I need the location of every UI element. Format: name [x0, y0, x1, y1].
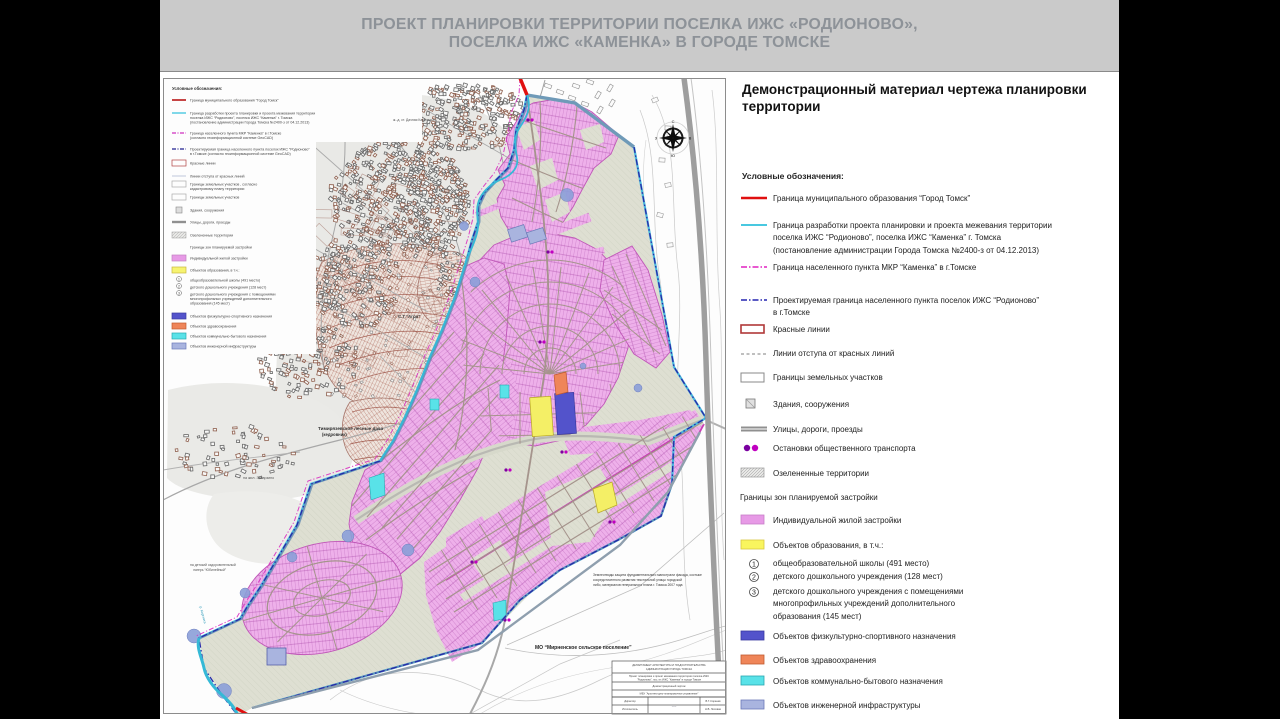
svg-text:“Родионово”, пос. их ИЖС “Кам: “Родионово”, пос. их ИЖС “Каменка” в гор… — [637, 678, 702, 682]
svg-text:Граница населенного пункта МКР: Граница населенного пункта МКР “Каменка”… — [190, 131, 281, 135]
svg-text:1: 1 — [752, 562, 756, 569]
svg-text:(постановление администрации Г: (постановление администрации Города Томс… — [190, 121, 310, 125]
svg-text:Линии отступа от красных линий: Линии отступа от красных линий — [190, 174, 245, 178]
svg-text:детского дошкольного учреждени: детского дошкольного учреждения с помеще… — [190, 292, 276, 296]
svg-text:Землеотводы защита фундаментал: Землеотводы защита фундаментального маги… — [593, 573, 702, 577]
svg-text:1: 1 — [178, 278, 180, 282]
svg-text:Демонстрационный чертеж: Демонстрационный чертеж — [653, 684, 686, 688]
svg-text:Границы земельных участков , с: Границы земельных участков , согласно — [190, 182, 257, 186]
svg-text:В.Г. Коренев: В.Г. Коренев — [705, 699, 721, 703]
svg-text:3: 3 — [752, 590, 756, 597]
svg-text:Здания, сооружения: Здания, сооружения — [190, 208, 224, 212]
svg-text:2: 2 — [178, 285, 180, 289]
svg-text:кадастровому плану территории: кадастровому плану территории — [190, 187, 244, 191]
svg-text:Границы зон планируемой застро: Границы зон планируемой застройки — [190, 245, 252, 249]
svg-text:Озелененные территории: Озелененные территории — [190, 233, 233, 237]
svg-text:Директор: Директор — [624, 699, 636, 703]
svg-text:детского дошкольного учреждени: детского дошкольного учреждения (128 мес… — [190, 285, 266, 289]
svg-text:Исполнитель: Исполнитель — [622, 707, 638, 711]
svg-text:~~: ~~ — [672, 704, 677, 709]
svg-text:ж.-д. ст. Дачная Каменка: ж.-д. ст. Дачная Каменка — [393, 118, 432, 122]
svg-text:МО “Мирненское сельское поселе: МО “Мирненское сельское поселение” — [535, 645, 632, 651]
svg-text:Красные линии: Красные линии — [190, 161, 216, 165]
svg-text:Проектируемая граница населенн: Проектируемая граница населенного пункта… — [190, 147, 310, 151]
svg-text:(кедровник): (кедровник) — [322, 432, 347, 437]
svg-text:2: 2 — [752, 575, 756, 582]
svg-text:С.Т.“Агро”: С.Т.“Агро” — [398, 314, 421, 319]
svg-text:Граница муниципального образов: Граница муниципального образования “Горо… — [190, 98, 279, 102]
svg-text:Объектов инженерной инфраструк: Объектов инженерной инфраструктуры — [190, 344, 257, 348]
svg-text:либо, материалов генерального: либо, материалов генерального плана г. Т… — [593, 583, 683, 587]
svg-text:на жил. Заварзино: на жил. Заварзино — [243, 476, 274, 480]
svg-text:на детский оздоровительный: на детский оздоровительный — [190, 563, 236, 567]
svg-text:сосредоточенного развития текс: сосредоточенного развития текстильной ул… — [593, 578, 682, 582]
svg-text:образования (145 мест): образования (145 мест) — [190, 302, 230, 306]
svg-text:в г.Томске (согласно геоинформ: в г.Томске (согласно геоинформационной с… — [190, 152, 291, 156]
svg-text:(согласно геоинформационной си: (согласно геоинформационной системе GeoC… — [190, 136, 273, 140]
svg-text:общеобразовательной школы (491: общеобразовательной школы (491 место) — [190, 278, 260, 282]
svg-text:Тимирязевское лесные дача: Тимирязевское лесные дача — [318, 426, 383, 431]
svg-text:поселка ИЖС “Родионово”, посел: поселка ИЖС “Родионово”, поселка ИЖС “Ка… — [190, 116, 292, 120]
svg-text:Граница разработки проекта пла: Граница разработки проекта планировки и … — [190, 111, 315, 115]
svg-text:Проект планировки и проект меж: Проект планировки и проект межевания тер… — [629, 674, 709, 678]
svg-text:МБУ “Архитектурно-планировочно: МБУ “Архитектурно-планировочное управлен… — [640, 692, 699, 696]
svg-text:Индивидуальной жилой застройки: Индивидуальной жилой застройки — [190, 256, 248, 260]
svg-text:Улицы, дороги, проезды: Улицы, дороги, проезды — [190, 220, 231, 224]
svg-text:Объектов образования, в т.ч.:: Объектов образования, в т.ч.: — [190, 268, 240, 272]
svg-text:Н.В. Лисовая: Н.В. Лисовая — [705, 707, 721, 711]
svg-text:3: 3 — [178, 292, 180, 296]
svg-text:лагерь “Юбилейный”: лагерь “Юбилейный” — [193, 568, 226, 572]
svg-text:С: С — [672, 119, 675, 124]
svg-text:Границы земельных участков: Границы земельных участков — [190, 195, 239, 199]
svg-text:ДЕПАРТАМЕНТ АРХИТЕКТУРЫ И ГРАД: ДЕПАРТАМЕНТ АРХИТЕКТУРЫ И ГРАДОСТРОИТЕЛЬ… — [632, 663, 705, 667]
svg-text:многопрофильных учреждений доп: многопрофильных учреждений дополнительно… — [190, 297, 272, 301]
svg-text:В: В — [689, 135, 692, 140]
svg-text:Объектов физкультурно-спортивн: Объектов физкультурно-спортивного назнач… — [190, 314, 272, 318]
svg-text:Объектов здравоохранения: Объектов здравоохранения — [190, 324, 236, 328]
svg-text:АДМИНИСТРАЦИИ ГОРОДА ТОМСКА: АДМИНИСТРАЦИИ ГОРОДА ТОМСКА — [646, 667, 693, 671]
svg-text:Условные обозначения:: Условные обозначения: — [172, 86, 222, 91]
svg-text:Ю: Ю — [671, 153, 675, 158]
svg-text:Объектов коммунально-бытового: Объектов коммунально-бытового назначения — [190, 334, 266, 338]
